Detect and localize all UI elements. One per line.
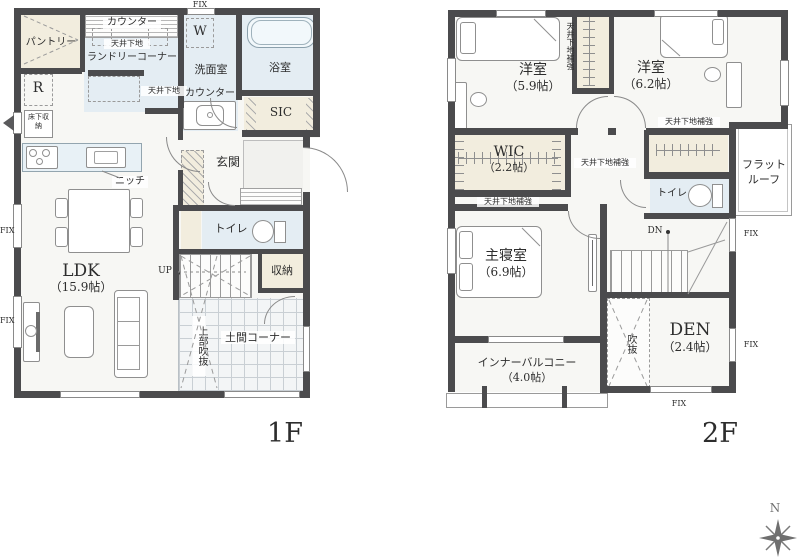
- f2-den-label: DEN: [652, 320, 728, 340]
- f1-ceiling-base-label-1: 天井下地: [104, 39, 150, 49]
- f1-laundry-label: ランドリーコーナー: [85, 52, 179, 64]
- f1-wall: [178, 170, 183, 207]
- f2-window-fix-right-2: [729, 328, 736, 362]
- f1-wall: [236, 8, 242, 100]
- f2-wall: [607, 292, 734, 298]
- f2-window-fix-right-1: [729, 218, 736, 252]
- f2-ceiling-reinforce-label-1: 天井下地補強: [562, 14, 574, 78]
- f2-wall: [644, 130, 649, 178]
- f2-wall: [644, 213, 734, 219]
- f1-wall: [303, 130, 320, 137]
- f2-wic-shelf-left: [455, 135, 464, 190]
- f2-fix-label-right-1: FIX: [738, 229, 764, 239]
- f2-balcony-size-label: （4.0帖）: [462, 371, 592, 384]
- f1-ldk-label: LDK: [41, 261, 121, 281]
- f1-counter-top-label: カウンター: [103, 17, 161, 29]
- f1-fridge-label: R: [26, 80, 50, 97]
- f2-window-top-1: [496, 10, 546, 17]
- f2-desk2: [726, 62, 742, 108]
- f1-wall: [258, 288, 304, 293]
- f1-up-label: UP: [155, 266, 175, 277]
- f1-genkan-tataki: [243, 140, 303, 189]
- f1-stove-burner-2: [42, 149, 50, 157]
- f2-wall: [600, 386, 650, 393]
- f2-flat-roof-label-2: ルーフ: [740, 173, 788, 186]
- f1-stove-burner-3: [36, 158, 43, 165]
- f1-bath-label: 浴室: [265, 61, 295, 74]
- f1-window-doma-right: [303, 326, 310, 372]
- f1-wall: [140, 391, 226, 398]
- f1-toilet-label: トイレ: [211, 222, 251, 235]
- f2-wall: [712, 386, 736, 393]
- f1-chair-4: [130, 227, 143, 247]
- f2-balcony-label: インナーバルコニー: [462, 356, 592, 369]
- f2-center-closet-rod-line: [589, 16, 590, 86]
- f1-toilet-tank: [274, 221, 286, 243]
- f2-fix-label-bottom: FIX: [664, 399, 694, 409]
- f1-window-notch: [13, 112, 22, 134]
- f1-porch-step: [240, 188, 302, 206]
- f1-stove-burner-1: [29, 149, 37, 157]
- f1-wall: [303, 371, 310, 398]
- f1-window-doma-bottom: [224, 391, 300, 398]
- f2-chair2: [704, 67, 721, 82]
- f2-toilet-label: トイレ: [653, 188, 691, 200]
- f2-wall: [448, 128, 578, 135]
- f2-bedroom2-label: 洋室: [608, 60, 694, 77]
- f1-pantry-label: パントリー: [22, 37, 80, 49]
- f2-window-fix-bottom: [650, 386, 712, 393]
- f1-chair-1: [55, 198, 68, 218]
- f2-wall: [644, 172, 734, 179]
- f2-master-tv-line: [592, 240, 593, 286]
- f1-dining-table: [68, 189, 130, 253]
- f2-window-master-bottom: [488, 336, 564, 343]
- f1-void-above-label: 上部吹抜: [192, 316, 206, 376]
- f1-wall: [242, 130, 304, 137]
- f1-fix-label-left-1: FIX: [0, 226, 14, 236]
- f1-wash-counter-label: カウンター: [182, 88, 238, 100]
- f1-toilet-closet: [181, 211, 201, 249]
- f1-wall: [173, 205, 179, 300]
- f1-sic-shelf-left: [246, 98, 256, 130]
- f1-chair-3: [130, 198, 143, 218]
- f2-floor-title: 2F: [690, 418, 750, 450]
- f2-wall: [448, 190, 571, 197]
- f2-balcony-post-2: [562, 386, 567, 408]
- f2-wic-size-label: （2.2帖）: [478, 161, 540, 174]
- f1-ldk-size-label: （15.9帖）: [41, 280, 121, 294]
- f2-flat-roof-label-1: フラット: [740, 158, 788, 171]
- f1-chair-2: [55, 227, 68, 247]
- f1-wall: [242, 90, 320, 96]
- f1-ceiling-dash-2: [148, 28, 168, 46]
- f1-wash-faucet: [207, 112, 213, 118]
- f2-balcony-post-1: [482, 386, 487, 408]
- f2-wall: [646, 128, 734, 135]
- f1-wall: [14, 8, 189, 15]
- f2-wic-label: WIC: [478, 144, 540, 161]
- f1-niche-label: ニッチ: [112, 176, 148, 188]
- f2-toilet-tank: [712, 184, 723, 208]
- f2-wall: [600, 204, 607, 392]
- f2-window-left-1: [447, 58, 456, 102]
- f1-toilet-bowl: [252, 220, 274, 243]
- f1-wall: [14, 8, 21, 112]
- f1-floor-storage-label: 床下収納: [27, 113, 50, 131]
- f1-window-fix-left-2: [13, 296, 22, 348]
- f2-void-label: 吹抜: [621, 326, 635, 362]
- f1-window-ldk-bottom: [60, 391, 140, 398]
- f1-washroom-label: 洗面室: [190, 63, 232, 76]
- f1-fix-label-top: FIX: [184, 0, 216, 10]
- f2-wall: [608, 128, 616, 135]
- f2-master-label: 主寝室: [467, 248, 545, 265]
- f1-wall: [215, 8, 320, 15]
- f1-window-fix-left-1: [13, 204, 22, 248]
- f1-stairs: [179, 254, 252, 298]
- f1-wall: [303, 192, 310, 327]
- f2-window-top-2: [654, 10, 718, 17]
- f1-awning-icon: [3, 115, 14, 131]
- f1-wall: [14, 248, 21, 296]
- f2-chair1: [470, 92, 487, 107]
- f2-wic-shelf-right: [552, 135, 561, 190]
- f1-ceiling-dash-3: [88, 76, 140, 102]
- f1-wall: [258, 254, 262, 290]
- f1-washer-label: W: [188, 24, 212, 40]
- f2-ceiling-reinforce-label-4: 天井下地補強: [477, 197, 539, 207]
- f2-ceiling-reinforce-label-3: 天井下地補強: [574, 158, 636, 168]
- f1-storage-label: 収納: [266, 264, 298, 277]
- compass-north-label: N: [767, 501, 783, 515]
- f1-wall: [178, 205, 304, 211]
- f2-wall: [448, 10, 496, 17]
- f2-window-right-bedroom2: [780, 60, 789, 106]
- f1-sofa-seats: [117, 297, 140, 370]
- f1-wall: [178, 249, 304, 254]
- f1-sic-label: SIC: [265, 105, 297, 119]
- f2-fix-label-right-2: FIX: [738, 340, 764, 350]
- f1-wall: [14, 391, 62, 398]
- f1-bathtub-inner: [251, 20, 312, 45]
- f2-wall: [729, 252, 736, 328]
- f1-entrance-label: 玄関: [213, 155, 243, 169]
- floor-plan-canvas: パントリー カウンター 天井下地 ランドリーコーナー W 洗面室 浴室 天井下地…: [0, 0, 800, 557]
- f2-wall: [448, 10, 455, 58]
- f1-tv-speaker: [25, 325, 37, 337]
- f1-doma-label: 土間コーナー: [221, 331, 295, 344]
- f2-bedroom2-closet-rod-line: [656, 150, 720, 151]
- f1-rug: [64, 306, 94, 358]
- f1-entrance-door-arc: [303, 147, 348, 192]
- f2-wall: [734, 122, 788, 129]
- f2-wall: [718, 10, 788, 17]
- f2-dn-label: DN: [644, 226, 666, 237]
- f2-bed1-pillow: [460, 22, 476, 54]
- f2-toilet-bowl: [688, 184, 712, 207]
- f2-bedroom1-size-label: （5.9帖）: [490, 79, 576, 93]
- f1-floor-title: 1F: [255, 418, 315, 450]
- f1-ceiling-base-label-2: 天井下地: [141, 86, 187, 96]
- f2-master-size-label: （6.9帖）: [467, 265, 545, 279]
- f2-wall: [448, 274, 455, 392]
- f2-dn-dot: [666, 230, 670, 234]
- compass-rose-icon: [756, 516, 800, 557]
- f2-ceiling-reinforce-label-2: 天井下地補強: [658, 117, 720, 127]
- f2-wall: [781, 10, 788, 60]
- f2-bedroom2-size-label: （6.2帖）: [608, 77, 694, 91]
- f2-den-size-label: （2.4帖）: [652, 340, 728, 354]
- f2-wall: [729, 122, 736, 218]
- f2-wall: [565, 133, 571, 192]
- f1-wall: [88, 70, 144, 76]
- f1-wall: [14, 134, 21, 204]
- f2-balcony-edge: [446, 393, 608, 408]
- f1-wall: [14, 68, 82, 74]
- f1-wall: [313, 8, 320, 137]
- f1-fix-label-left-2: FIX: [0, 316, 14, 326]
- f2-bed2-pillow: [712, 19, 724, 45]
- f1-kitchen-sink-basin: [94, 151, 118, 164]
- f2-window-left-2: [447, 228, 456, 274]
- f2-stairs: [610, 250, 688, 296]
